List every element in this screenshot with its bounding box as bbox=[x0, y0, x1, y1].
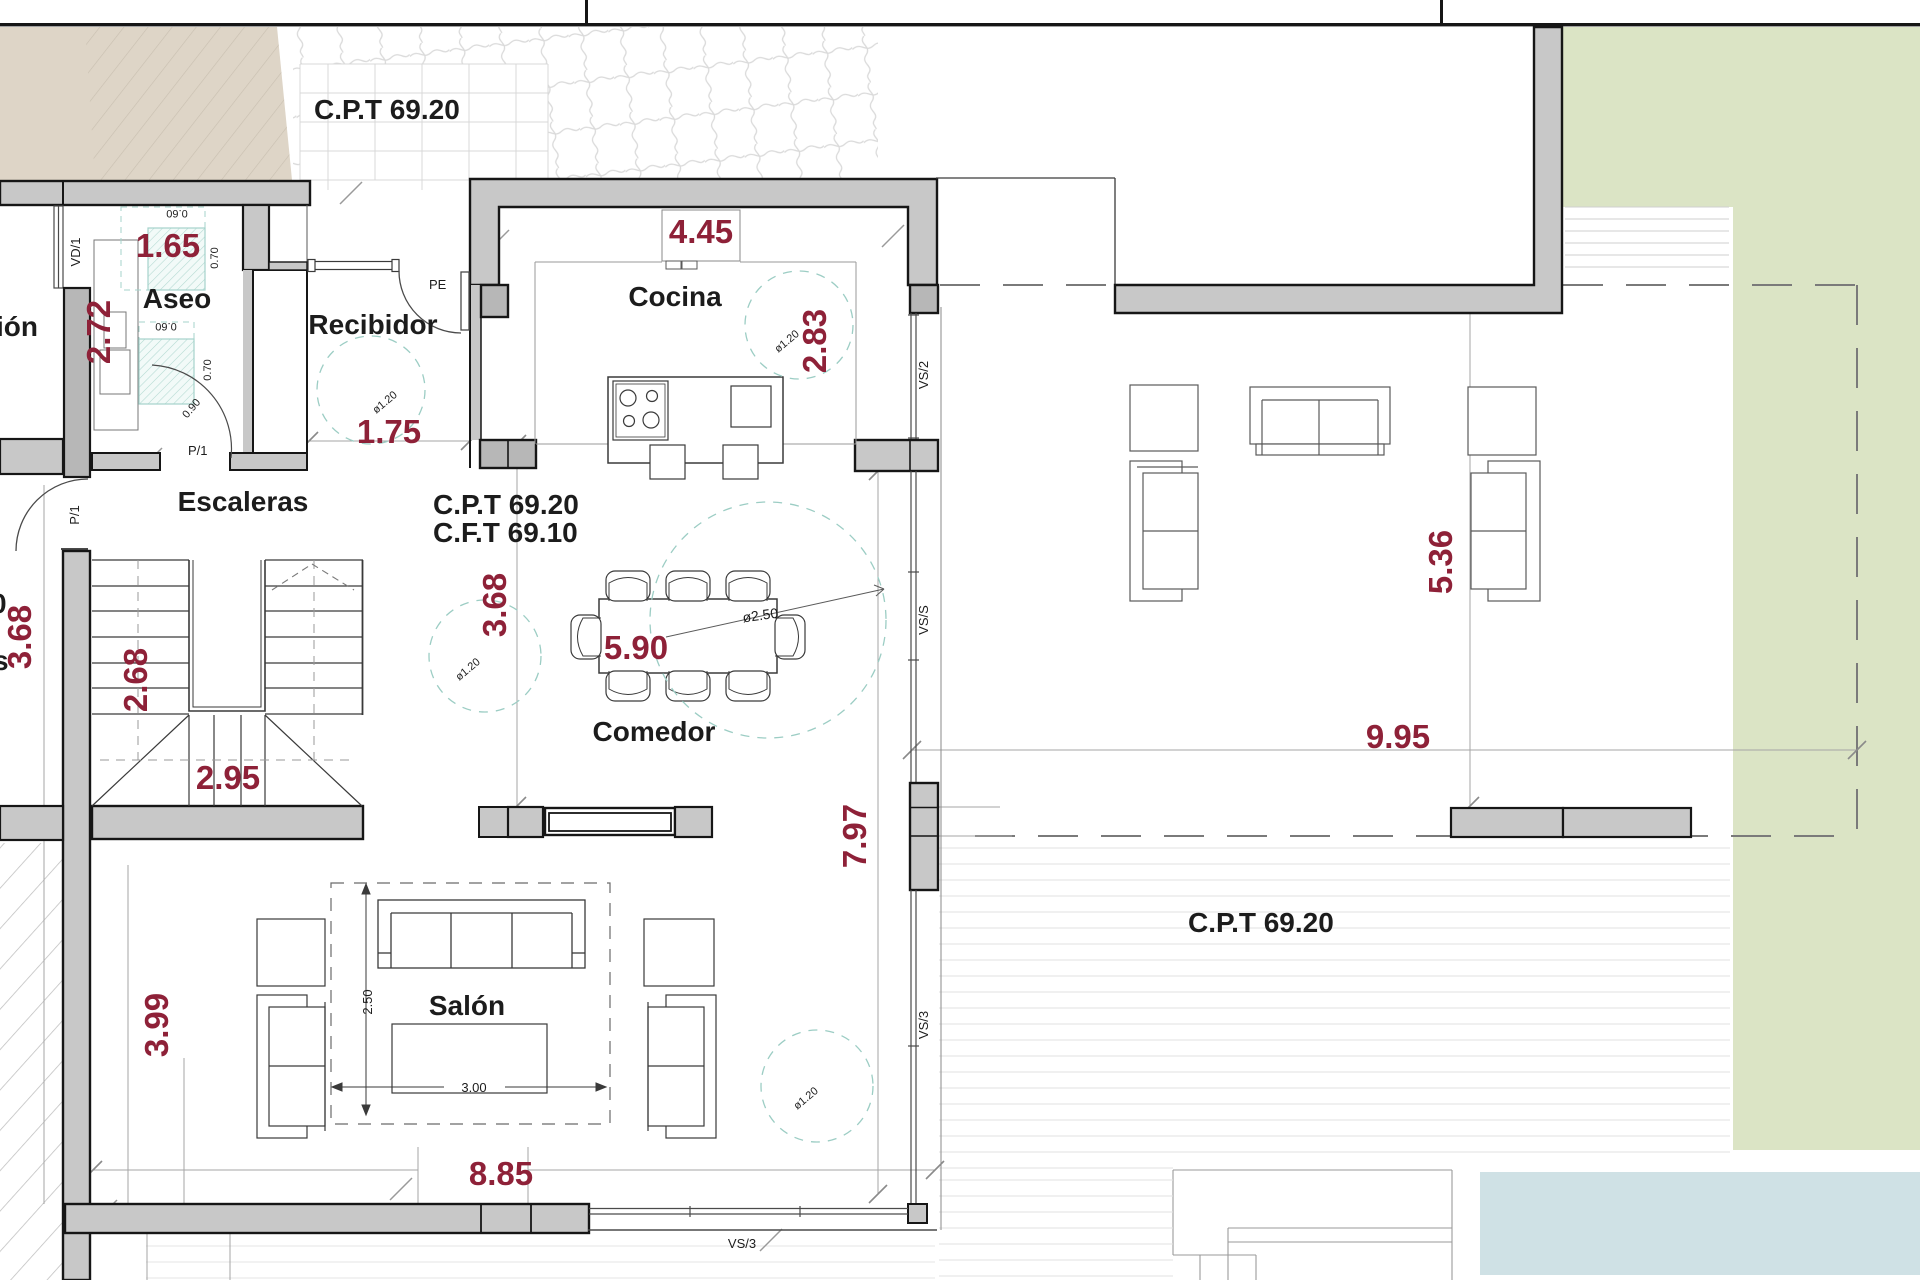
svg-text:3.99: 3.99 bbox=[138, 993, 175, 1057]
svg-text:1.75: 1.75 bbox=[357, 413, 421, 450]
svg-text:0.70: 0.70 bbox=[209, 247, 221, 268]
svg-text:1.65: 1.65 bbox=[136, 227, 200, 264]
svg-text:5.90: 5.90 bbox=[604, 629, 668, 666]
svg-text:VS/2: VS/2 bbox=[916, 361, 931, 389]
svg-text:0.60: 0.60 bbox=[166, 207, 187, 219]
svg-text:4.45: 4.45 bbox=[669, 213, 733, 250]
svg-text:C.P.T 69.20: C.P.T 69.20 bbox=[314, 94, 460, 125]
svg-text:Salón: Salón bbox=[429, 990, 505, 1021]
svg-text:PE: PE bbox=[429, 277, 447, 292]
svg-text:P/1: P/1 bbox=[67, 505, 82, 525]
svg-text:VS/S: VS/S bbox=[916, 605, 931, 635]
svg-text:ión: ión bbox=[0, 311, 38, 342]
svg-text:3.68: 3.68 bbox=[1, 605, 38, 669]
svg-text:7.97: 7.97 bbox=[836, 804, 873, 868]
svg-text:Cocina: Cocina bbox=[628, 281, 722, 312]
svg-text:P/1: P/1 bbox=[188, 443, 208, 458]
svg-text:Aseo: Aseo bbox=[143, 283, 211, 314]
svg-text:3.68: 3.68 bbox=[476, 573, 513, 637]
svg-text:5.36: 5.36 bbox=[1422, 530, 1459, 594]
svg-text:C.P.T 69.20: C.P.T 69.20 bbox=[433, 489, 579, 520]
svg-text:VS/3: VS/3 bbox=[728, 1236, 756, 1251]
svg-text:2.72: 2.72 bbox=[80, 300, 117, 364]
svg-text:0.60: 0.60 bbox=[155, 320, 176, 332]
svg-text:C.P.T 69.20: C.P.T 69.20 bbox=[1188, 907, 1334, 938]
svg-text:2.68: 2.68 bbox=[117, 648, 154, 712]
svg-text:9.95: 9.95 bbox=[1366, 718, 1430, 755]
svg-text:C.F.T 69.10: C.F.T 69.10 bbox=[433, 517, 578, 548]
svg-text:2.95: 2.95 bbox=[196, 759, 260, 796]
svg-text:Escaleras: Escaleras bbox=[178, 486, 309, 517]
svg-text:2.83: 2.83 bbox=[796, 309, 833, 373]
svg-text:VD/1: VD/1 bbox=[68, 238, 83, 267]
svg-text:3.00: 3.00 bbox=[461, 1080, 486, 1095]
svg-text:Comedor: Comedor bbox=[593, 716, 716, 747]
svg-text:2.50: 2.50 bbox=[360, 989, 375, 1014]
svg-text:Recibidor: Recibidor bbox=[308, 309, 437, 340]
svg-text:0.70: 0.70 bbox=[202, 359, 214, 380]
svg-text:8.85: 8.85 bbox=[469, 1155, 533, 1192]
svg-text:VS/3: VS/3 bbox=[916, 1011, 931, 1039]
